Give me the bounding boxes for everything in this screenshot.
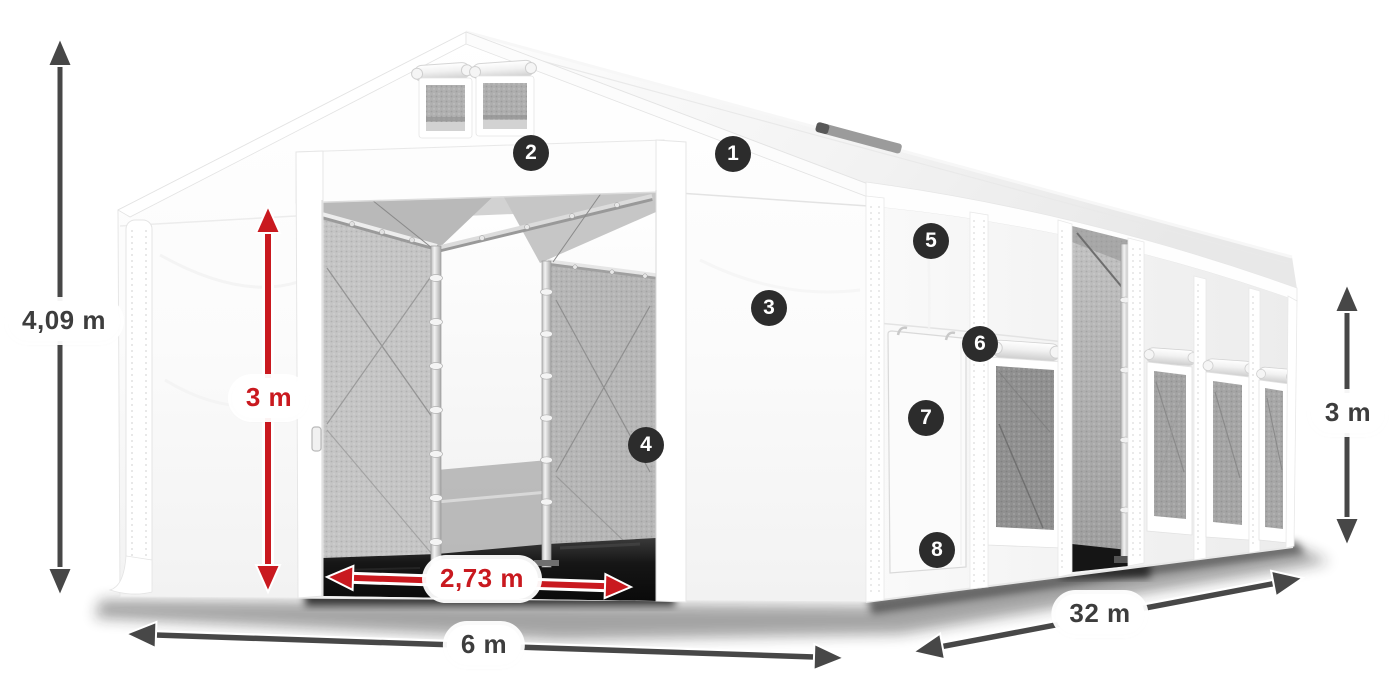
callout-7[interactable]: 7 [908,400,944,436]
dimension-label-front-width: 6 m [447,625,521,665]
side-window-2 [1144,347,1199,535]
dimension-label-side-length: 32 m [1055,594,1144,634]
front-entrance-interior [322,187,656,601]
door-handle [312,427,321,451]
dimension-label-side-height: 3 m [1311,393,1385,433]
front-left-corner-trim [110,220,152,594]
dimension-label-entrance-height: 3 m [232,378,306,418]
callout-2[interactable]: 2 [513,135,549,171]
tent-product-diagram: 4,09 m 3 m 2,73 m 6 m 32 m 3 m 1 2 3 4 5… [0,0,1400,700]
callout-8[interactable]: 8 [919,532,955,568]
callout-4[interactable]: 4 [628,427,664,463]
dimension-label-entrance-width: 2,73 m [426,559,538,599]
callout-3[interactable]: 3 [751,290,787,326]
gable-window-left [411,62,473,138]
tent-illustration [0,0,1400,700]
dimension-label-total-height: 4,09 m [8,301,120,341]
gable-window-right [469,60,537,136]
side-window-1 [988,340,1063,548]
callout-5[interactable]: 5 [913,223,949,259]
side-doorway-open [1058,220,1144,577]
callout-1[interactable]: 1 [715,136,751,172]
callout-6[interactable]: 6 [962,326,998,362]
